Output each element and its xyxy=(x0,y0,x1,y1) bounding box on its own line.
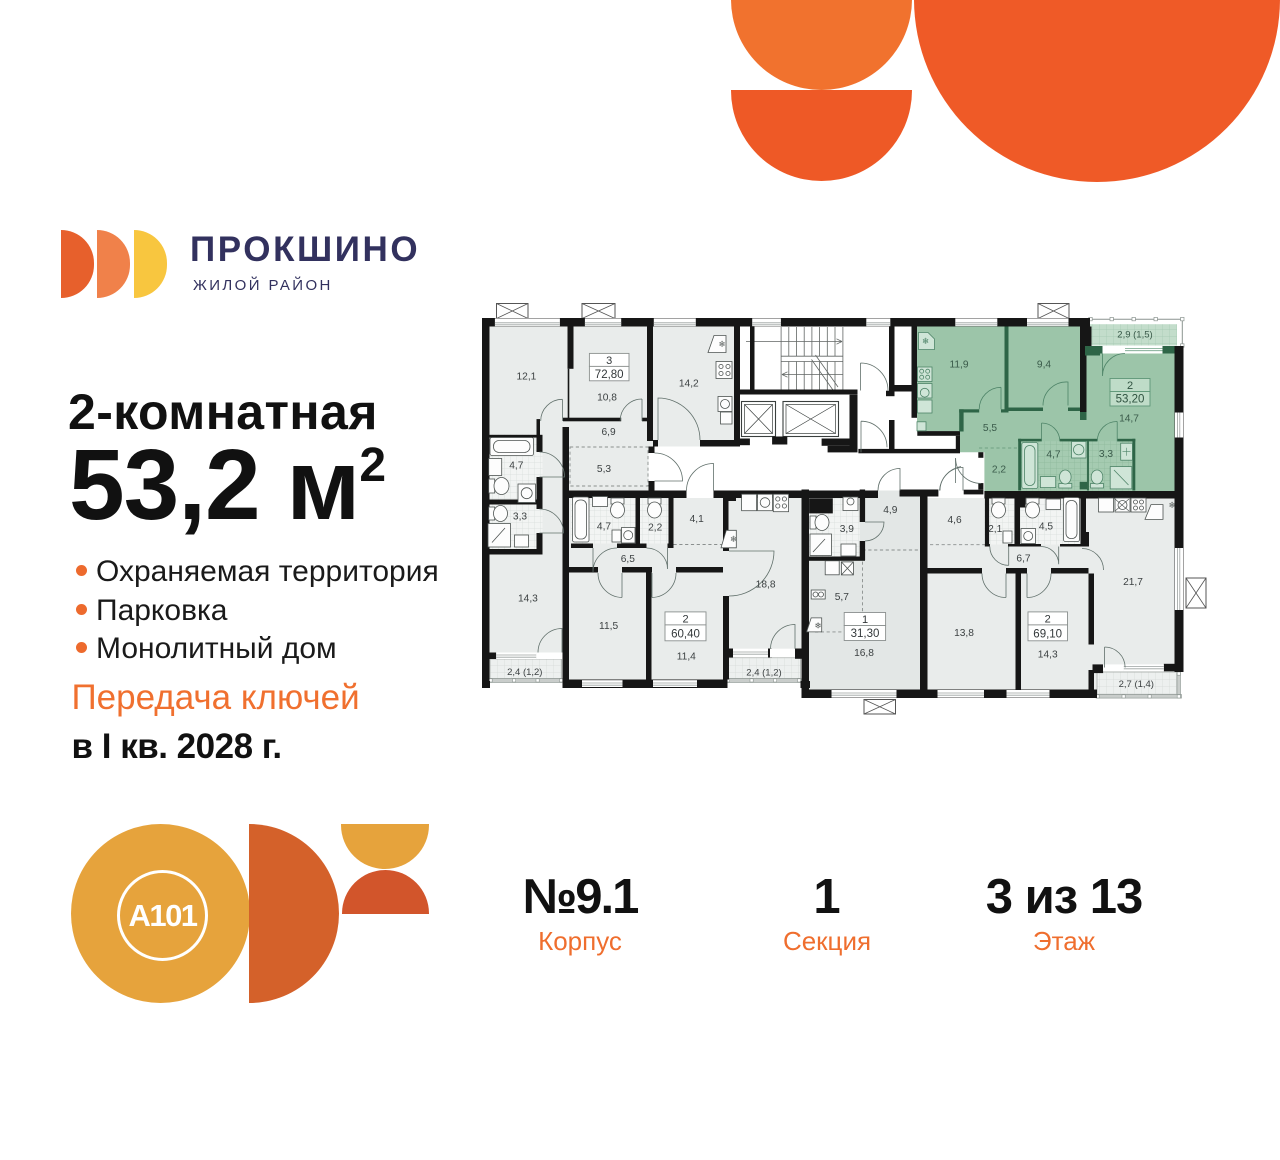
svg-text:3,9: 3,9 xyxy=(840,524,854,535)
svg-text:5,7: 5,7 xyxy=(835,592,849,603)
svg-text:14,3: 14,3 xyxy=(1038,649,1058,660)
svg-text:2,2: 2,2 xyxy=(648,523,662,534)
svg-text:4,7: 4,7 xyxy=(509,461,523,472)
svg-text:5,3: 5,3 xyxy=(597,464,611,475)
svg-text:3,3: 3,3 xyxy=(513,512,527,523)
svg-text:12,1: 12,1 xyxy=(516,372,536,383)
svg-text:2,4 (1,2): 2,4 (1,2) xyxy=(507,667,542,678)
svg-text:72,80: 72,80 xyxy=(595,369,624,381)
svg-text:10,8: 10,8 xyxy=(597,393,617,404)
svg-text:21,7: 21,7 xyxy=(1123,577,1143,588)
svg-text:11,9: 11,9 xyxy=(949,360,968,371)
svg-text:53,20: 53,20 xyxy=(1116,394,1145,406)
svg-text:6,9: 6,9 xyxy=(602,427,616,438)
svg-text:2: 2 xyxy=(682,613,688,625)
svg-text:❄: ❄ xyxy=(922,336,929,346)
svg-text:4,6: 4,6 xyxy=(948,515,962,526)
svg-text:11,4: 11,4 xyxy=(677,652,696,663)
svg-text:4,7: 4,7 xyxy=(1046,450,1060,461)
svg-text:31,30: 31,30 xyxy=(851,628,880,640)
svg-text:2,2: 2,2 xyxy=(992,465,1006,476)
svg-text:6,7: 6,7 xyxy=(1016,554,1030,565)
svg-text:2,7 (1,4): 2,7 (1,4) xyxy=(1119,679,1154,690)
svg-text:5,5: 5,5 xyxy=(983,423,997,434)
svg-text:9,4: 9,4 xyxy=(1037,360,1051,371)
svg-text:2: 2 xyxy=(1045,613,1051,625)
svg-text:14,7: 14,7 xyxy=(1119,414,1139,425)
svg-text:❄: ❄ xyxy=(730,534,737,544)
svg-text:6,5: 6,5 xyxy=(621,554,635,565)
svg-text:11,5: 11,5 xyxy=(599,621,618,632)
svg-text:1: 1 xyxy=(862,614,868,626)
svg-text:3,3: 3,3 xyxy=(1099,449,1113,460)
svg-text:16,8: 16,8 xyxy=(854,648,874,659)
svg-text:4,7: 4,7 xyxy=(597,522,611,533)
svg-text:60,40: 60,40 xyxy=(671,628,700,640)
svg-text:69,10: 69,10 xyxy=(1033,628,1062,640)
svg-text:2,9 (1,5): 2,9 (1,5) xyxy=(1117,329,1152,340)
svg-text:❄: ❄ xyxy=(1168,500,1175,510)
svg-text:4,1: 4,1 xyxy=(690,514,704,525)
svg-text:3: 3 xyxy=(606,355,612,367)
svg-text:14,3: 14,3 xyxy=(518,594,538,605)
svg-text:18,8: 18,8 xyxy=(756,579,776,590)
svg-text:4,5: 4,5 xyxy=(1039,522,1053,533)
svg-text:❄: ❄ xyxy=(814,621,821,631)
svg-text:2: 2 xyxy=(1127,380,1133,392)
svg-text:14,2: 14,2 xyxy=(679,379,699,390)
svg-text:4,9: 4,9 xyxy=(883,505,897,516)
svg-text:2,1: 2,1 xyxy=(988,524,1002,535)
svg-text:❄: ❄ xyxy=(718,339,725,349)
svg-text:2,4 (1,2): 2,4 (1,2) xyxy=(746,668,781,679)
svg-text:13,8: 13,8 xyxy=(954,628,974,639)
